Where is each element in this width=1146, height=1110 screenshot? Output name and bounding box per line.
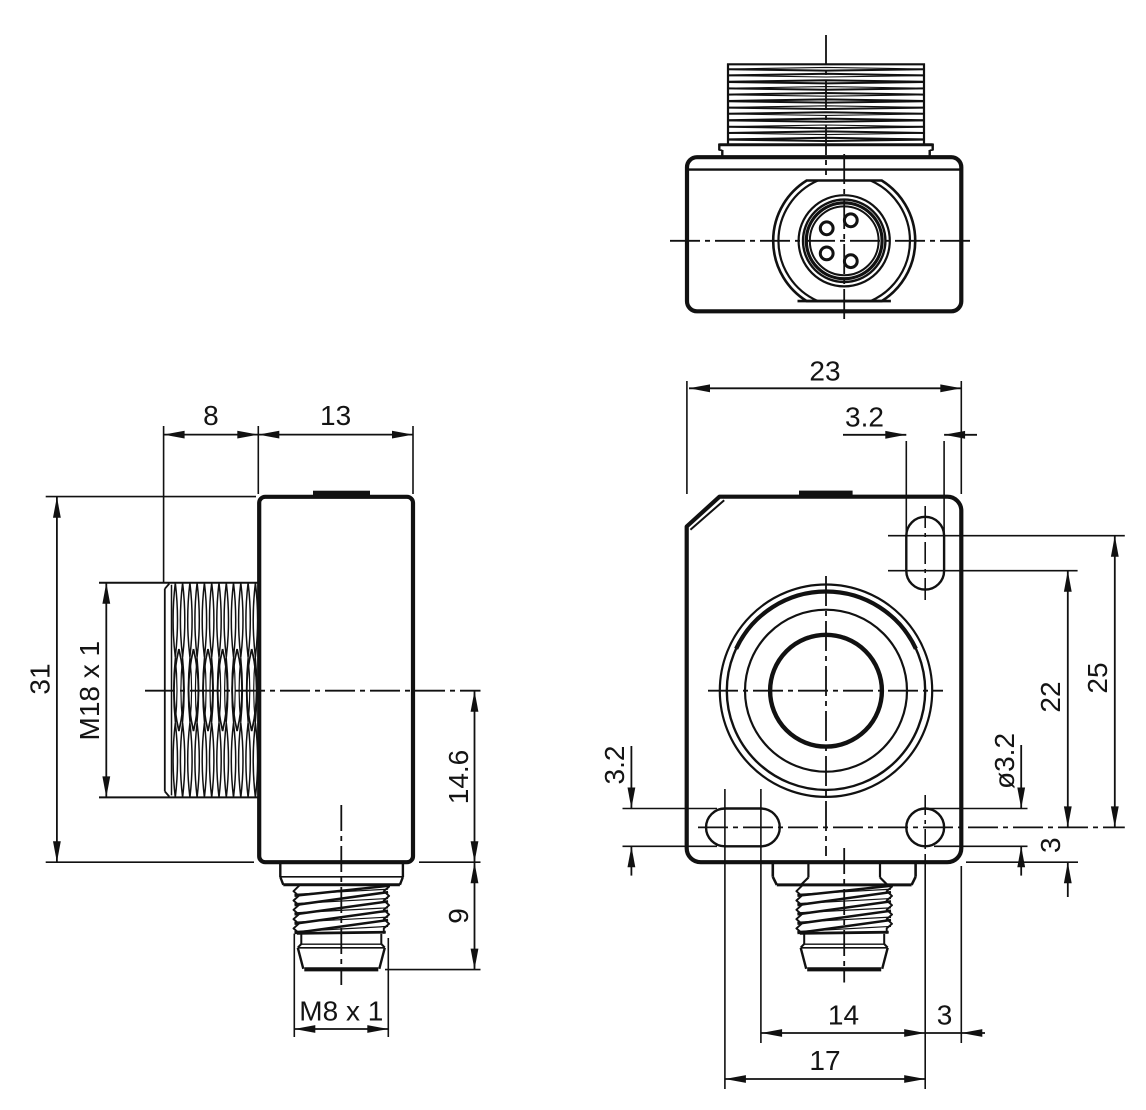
svg-text:3.2: 3.2 [845,402,884,433]
svg-text:3: 3 [937,999,953,1030]
svg-text:31: 31 [24,663,55,694]
svg-text:13: 13 [320,400,351,431]
svg-text:9: 9 [443,908,474,924]
svg-text:25: 25 [1082,662,1113,693]
svg-text:3.2: 3.2 [599,746,630,785]
svg-text:3: 3 [1035,837,1066,853]
svg-text:14: 14 [828,999,859,1030]
svg-text:14.6: 14.6 [443,750,474,805]
svg-text:M8 x 1: M8 x 1 [299,996,383,1027]
svg-text:22: 22 [1035,681,1066,712]
svg-text:ø3.2: ø3.2 [989,733,1020,789]
svg-text:8: 8 [203,400,219,431]
svg-text:23: 23 [809,356,840,387]
svg-text:M18 x 1: M18 x 1 [74,641,105,741]
svg-text:17: 17 [809,1045,840,1076]
